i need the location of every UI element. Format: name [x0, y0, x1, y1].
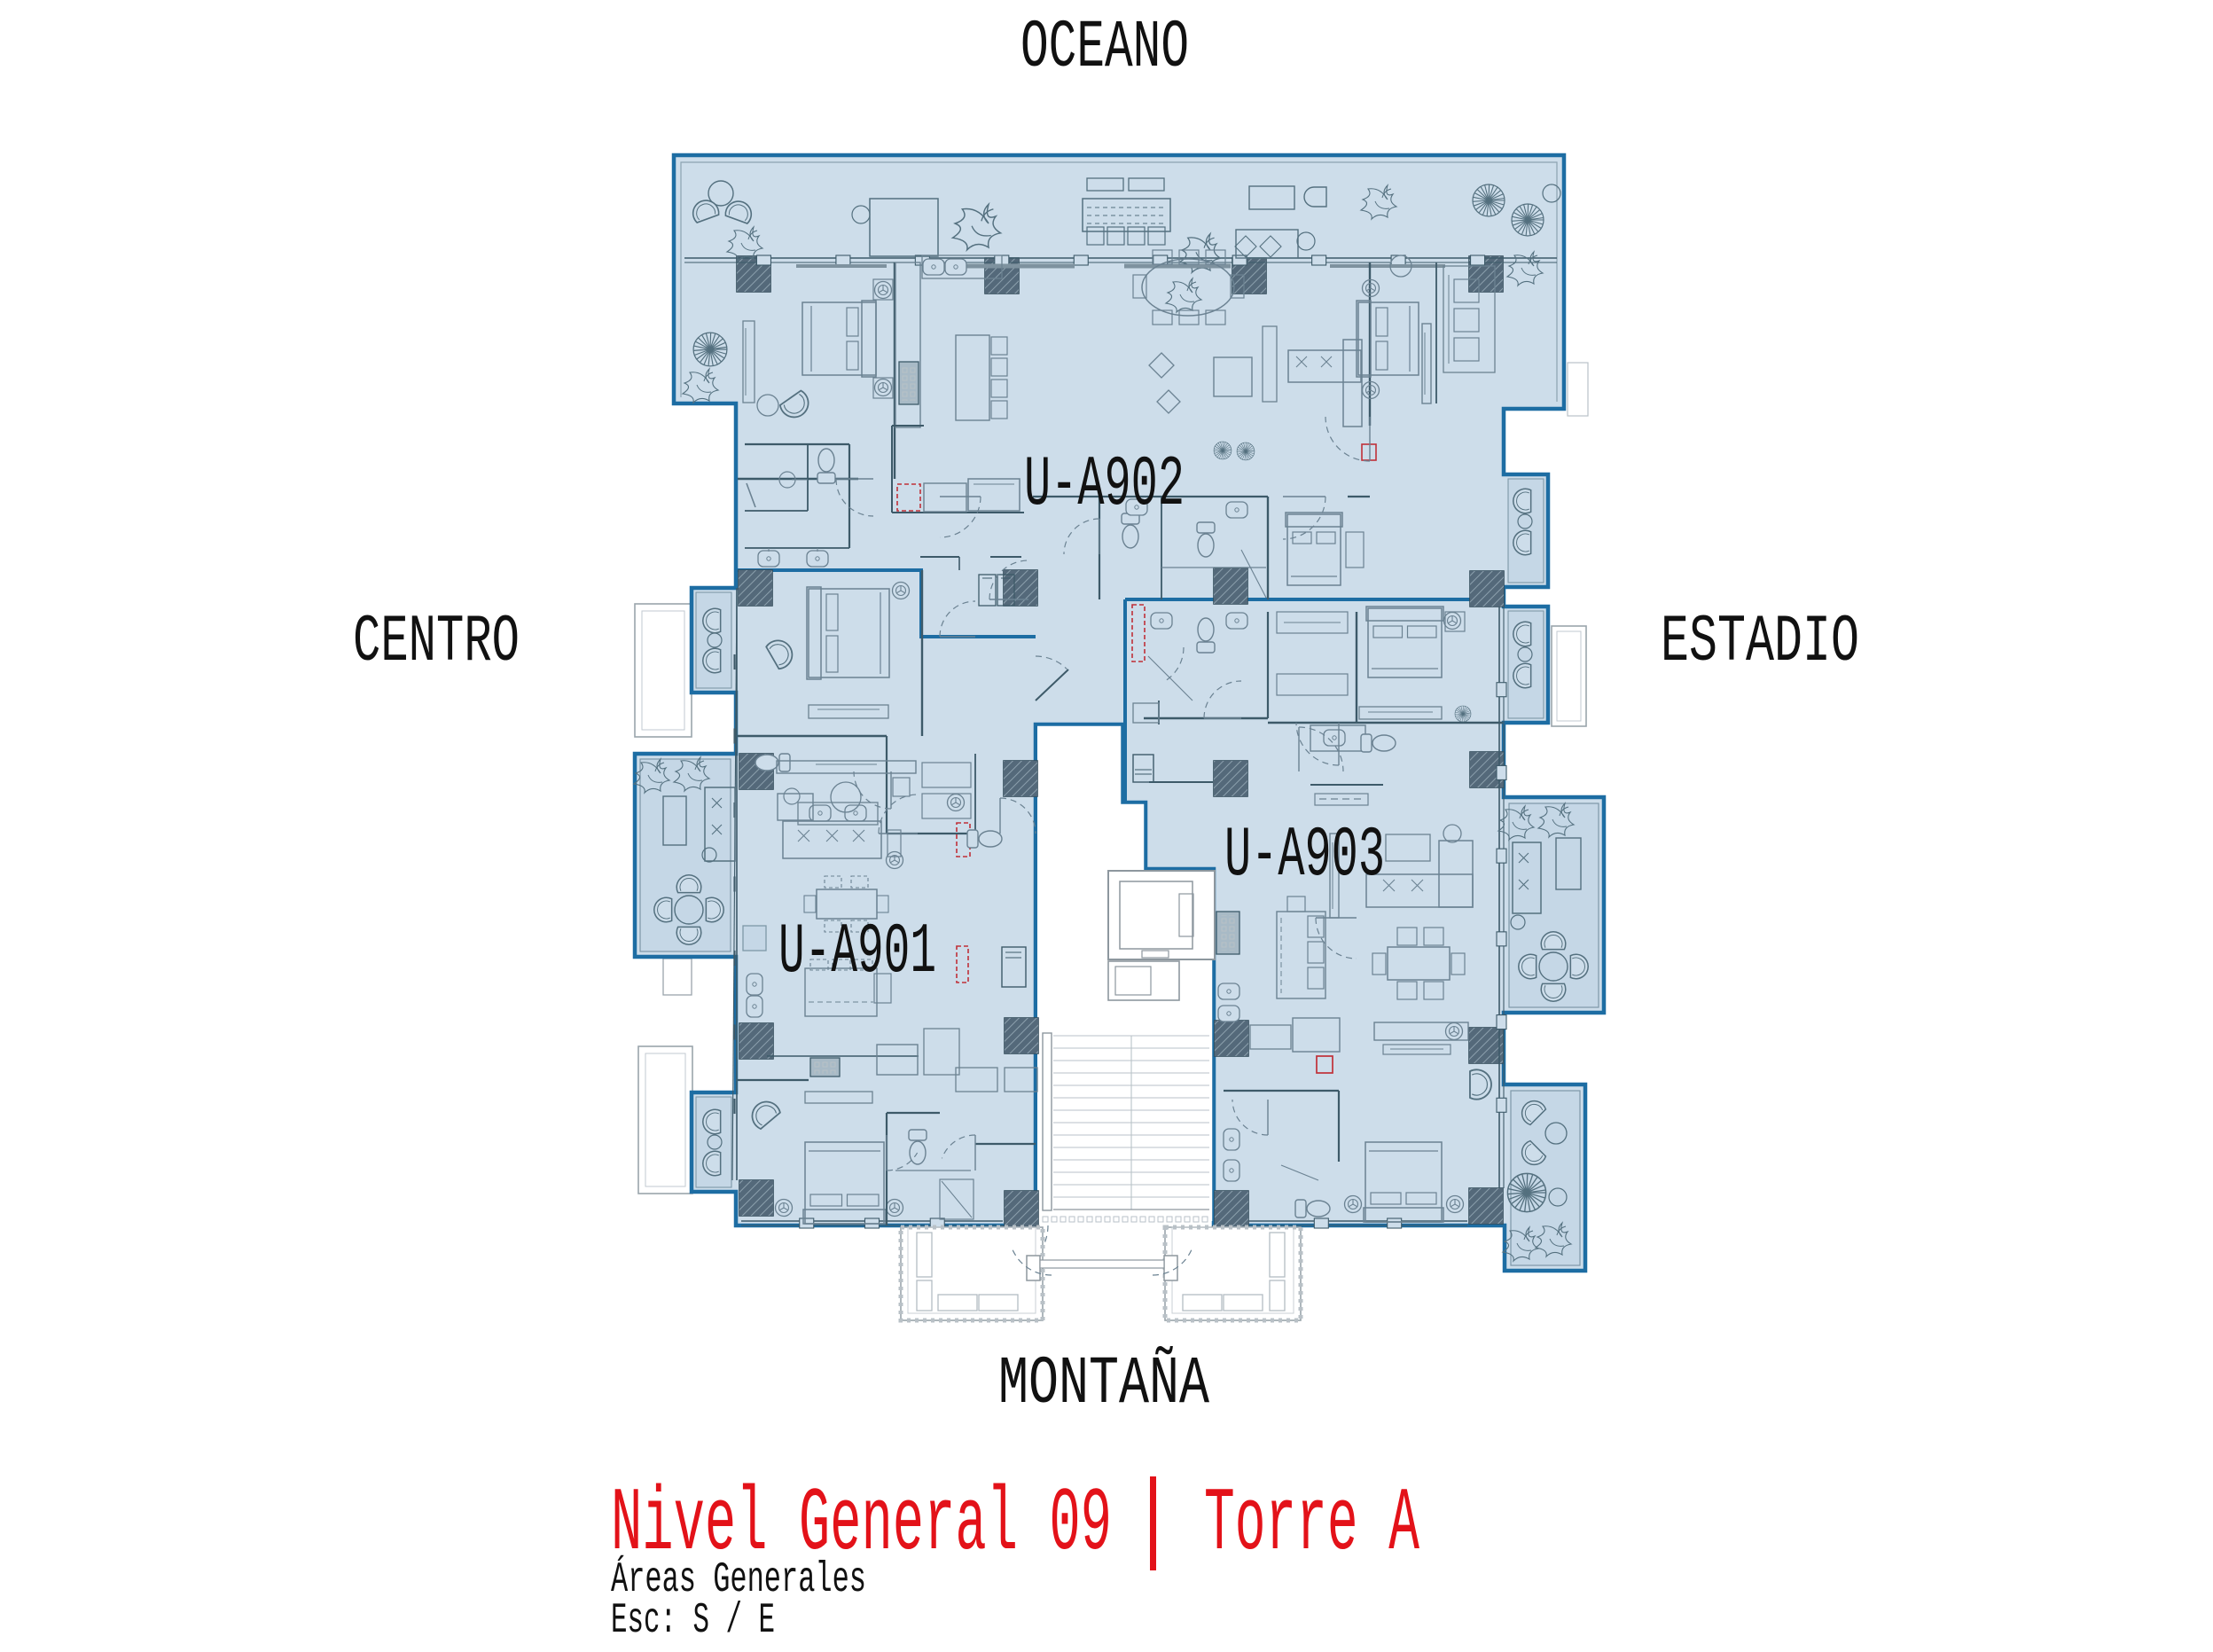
svg-text:Esc: S / E: Esc: S / E	[611, 1597, 775, 1645]
svg-text:U-A902: U-A902	[1024, 445, 1185, 526]
svg-text:MONTAÑA: MONTAÑA	[998, 1346, 1209, 1422]
svg-text:ESTADIO: ESTADIO	[1661, 605, 1859, 680]
svg-text:U-A903: U-A903	[1224, 816, 1385, 896]
svg-text:CENTRO: CENTRO	[353, 605, 520, 680]
svg-text:Torre A: Torre A	[1204, 1475, 1419, 1576]
svg-text:U-A901: U-A901	[778, 912, 936, 993]
svg-text:OCEANO: OCEANO	[1020, 10, 1189, 86]
